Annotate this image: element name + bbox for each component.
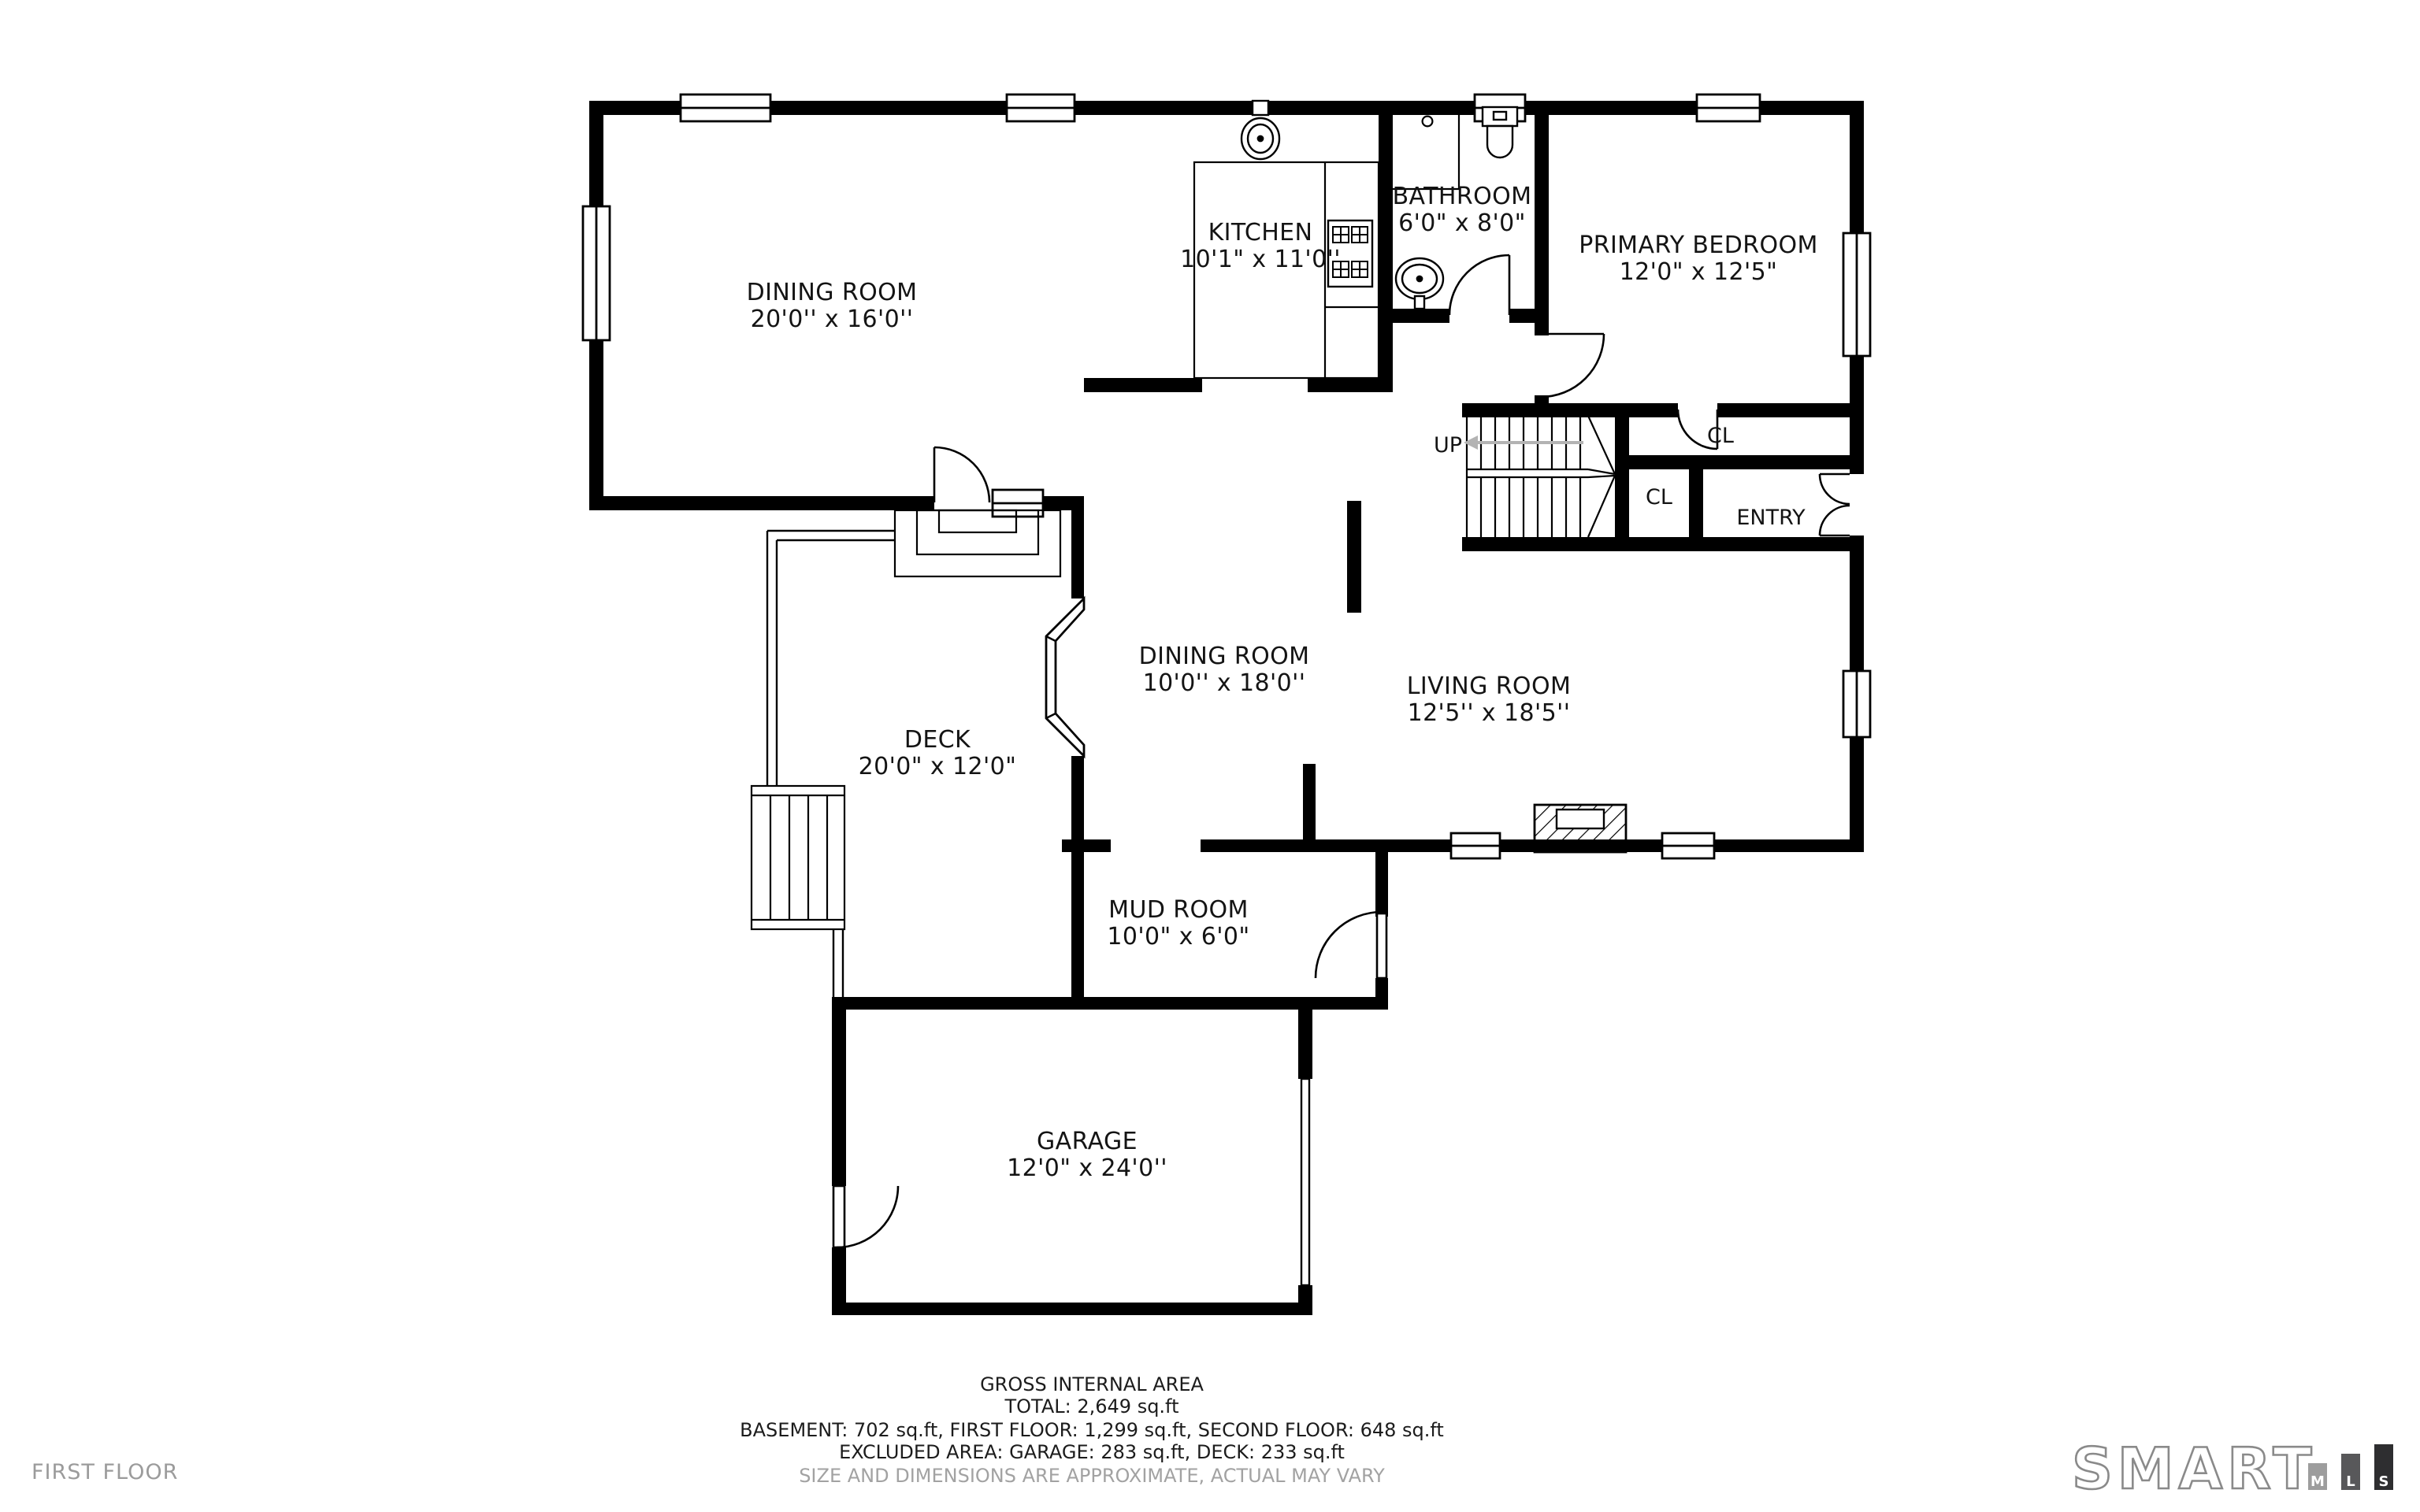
room-dims: 20'0" x 12'0"	[859, 753, 1017, 779]
bay-window-icon	[1046, 598, 1084, 756]
room-dims: 12'5'' x 18'5''	[1407, 699, 1572, 725]
deck-steps-top	[895, 510, 1060, 576]
room-dims: 6'0" x 8'0"	[1393, 209, 1532, 235]
room-label-living: LIVING ROOM 12'5'' x 18'5''	[1407, 673, 1572, 725]
garage-door-icon	[1301, 1079, 1309, 1285]
logo-letter-s: S	[2379, 1473, 2389, 1490]
window-icon	[1451, 833, 1500, 858]
total-area: TOTAL: 2,649 sq.ft	[740, 1396, 1444, 1419]
disclaimer: SIZE AND DIMENSIONS ARE APPROXIMATE, ACT…	[740, 1464, 1444, 1487]
room-label-deck: DECK 20'0" x 12'0"	[859, 727, 1017, 779]
floor-name-label: FIRST FLOOR	[32, 1460, 178, 1485]
door-icon-bedroom	[1541, 334, 1604, 397]
room-dims: 10'1" x 11'0''	[1180, 246, 1341, 272]
window-icon	[1843, 671, 1870, 737]
room-name: DINING ROOM	[1139, 643, 1310, 669]
room-name: DINING ROOM	[747, 280, 918, 306]
fireplace-icon	[1535, 805, 1626, 852]
room-dims: 10'0" x 6'0"	[1107, 923, 1249, 949]
excluded-area: EXCLUDED AREA: GARAGE: 283 sq.ft, DECK: …	[740, 1441, 1444, 1464]
room-name: KITCHEN	[1180, 220, 1341, 246]
logo-letter-m: M	[2311, 1473, 2325, 1490]
closet-bottom-label: CL	[1646, 485, 1672, 510]
room-label-primary-bedroom: PRIMARY BEDROOM 12'0" x 12'5"	[1579, 232, 1818, 284]
stairs-icon	[1467, 416, 1615, 537]
room-dims: 12'0" x 12'5"	[1579, 258, 1818, 284]
smart-mls-logo: SMART M L S	[2069, 1422, 2415, 1504]
window-icon	[583, 206, 610, 340]
room-label-dining-main: DINING ROOM 20'0'' x 16'0''	[747, 280, 918, 332]
room-label-mud-room: MUD ROOM 10'0" x 6'0"	[1107, 897, 1249, 949]
door-icon-mudroom	[1316, 912, 1386, 978]
room-label-kitchen: KITCHEN 10'1" x 11'0''	[1180, 220, 1341, 272]
window-icon	[681, 94, 770, 121]
window-icon	[1697, 94, 1760, 121]
floor-plan-page: DINING ROOM 20'0'' x 16'0'' KITCHEN 10'1…	[0, 0, 2420, 1512]
window-icon	[1007, 94, 1075, 121]
toilet-icon	[1483, 107, 1517, 157]
floors-area: BASEMENT: 702 sq.ft, FIRST FLOOR: 1,299 …	[740, 1419, 1444, 1442]
door-icon-dining	[934, 447, 989, 502]
bathroom-sink-icon	[1396, 258, 1443, 309]
room-name: GARAGE	[1007, 1128, 1167, 1154]
door-icon-entry-double	[1820, 474, 1850, 535]
window-icon	[1662, 833, 1714, 858]
room-dims: 12'0" x 24'0''	[1007, 1154, 1167, 1180]
area-summary: GROSS INTERNAL AREA TOTAL: 2,649 sq.ft B…	[740, 1373, 1444, 1487]
logo-letter-l: L	[2346, 1473, 2355, 1490]
door-icon-garage-side	[833, 1186, 898, 1247]
room-dims: 10'0'' x 18'0''	[1139, 669, 1310, 695]
window-icon	[1843, 233, 1870, 356]
room-name: PRIMARY BEDROOM	[1579, 232, 1818, 258]
logo-word: SMART	[2072, 1436, 2317, 1502]
room-name: DECK	[859, 727, 1017, 753]
room-label-dining-mid: DINING ROOM 10'0'' x 18'0''	[1139, 643, 1310, 695]
room-label-bathroom: BATHROOM 6'0" x 8'0"	[1393, 183, 1532, 235]
shower-icon	[1393, 104, 1459, 189]
gross-area-title: GROSS INTERNAL AREA	[740, 1373, 1444, 1396]
stairs-up-label: UP	[1434, 433, 1462, 458]
window-icon	[993, 490, 1043, 517]
deck-steps-left	[752, 786, 844, 929]
room-name: MUD ROOM	[1107, 897, 1249, 923]
room-dims: 20'0'' x 16'0''	[747, 306, 918, 332]
room-label-garage: GARAGE 12'0" x 24'0''	[1007, 1128, 1167, 1180]
room-name: BATHROOM	[1393, 183, 1532, 209]
entry-label: ENTRY	[1736, 506, 1805, 531]
closet-top-label: CL	[1707, 424, 1734, 449]
room-name: LIVING ROOM	[1407, 673, 1572, 699]
door-icon-bathroom	[1449, 255, 1509, 315]
